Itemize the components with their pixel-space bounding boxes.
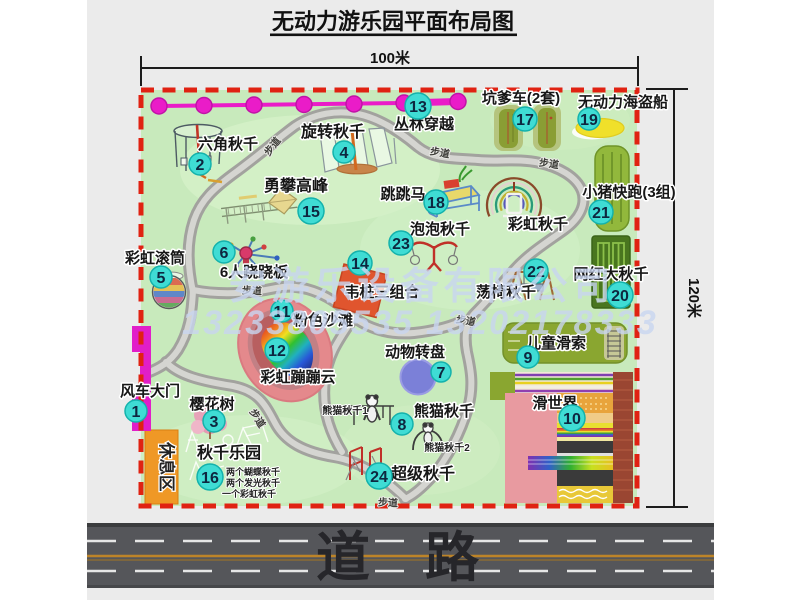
svg-text:彩虹滚筒: 彩虹滚筒 xyxy=(124,249,185,267)
svg-text:彩虹秋千: 彩虹秋千 xyxy=(507,215,568,233)
svg-text:15: 15 xyxy=(302,204,320,221)
svg-text:彩虹蹦蹦云: 彩虹蹦蹦云 xyxy=(259,368,335,386)
svg-text:18: 18 xyxy=(427,195,445,212)
svg-text:无动力游乐园平面布局图: 无动力游乐园平面布局图 xyxy=(272,9,514,34)
svg-text:6: 6 xyxy=(220,245,229,262)
svg-text:12: 12 xyxy=(268,343,286,360)
svg-text:5: 5 xyxy=(157,270,166,287)
svg-text:小猪快跑(3组): 小猪快跑(3组) xyxy=(582,183,675,201)
svg-text:16: 16 xyxy=(201,470,219,487)
svg-text:24: 24 xyxy=(370,469,388,486)
svg-text:19: 19 xyxy=(580,112,598,129)
svg-text:休息区: 休息区 xyxy=(157,441,177,492)
svg-text:3: 3 xyxy=(210,414,219,431)
svg-text:4: 4 xyxy=(340,145,349,162)
svg-text:两个发光秋千: 两个发光秋千 xyxy=(226,477,280,488)
svg-text:超级秋千: 超级秋千 xyxy=(390,464,455,483)
svg-text:9: 9 xyxy=(524,350,533,367)
svg-text:一个彩虹秋千: 一个彩虹秋千 xyxy=(222,488,276,499)
svg-text:六角秋千: 六角秋千 xyxy=(198,135,258,153)
svg-text:1: 1 xyxy=(132,404,141,421)
svg-text:两个蝴蝶秋千: 两个蝴蝶秋千 xyxy=(226,466,280,477)
svg-text:100米: 100米 xyxy=(370,49,411,67)
svg-text:7: 7 xyxy=(437,365,446,382)
svg-text:安游乐设备有限公司: 安游乐设备有限公司 xyxy=(228,266,615,308)
svg-text:道: 道 xyxy=(316,528,370,588)
svg-text:10: 10 xyxy=(563,411,581,428)
svg-text:泡泡秋千: 泡泡秋千 xyxy=(410,220,470,238)
svg-text:坑爹车(2套): 坑爹车(2套) xyxy=(482,89,560,107)
svg-text:动物转盘: 动物转盘 xyxy=(385,343,445,361)
svg-text:熊猫秋千1: 熊猫秋千1 xyxy=(322,404,368,417)
svg-text:120米: 120米 xyxy=(685,278,703,319)
svg-text:2: 2 xyxy=(196,157,205,174)
svg-text:13: 13 xyxy=(409,99,427,116)
svg-text:17: 17 xyxy=(516,112,534,129)
svg-text:熊猫秋千2: 熊猫秋千2 xyxy=(424,441,470,454)
svg-text:21: 21 xyxy=(592,205,610,222)
svg-text:路: 路 xyxy=(425,528,480,588)
svg-text:熊猫秋千: 熊猫秋千 xyxy=(414,402,474,420)
svg-text:旋转秋千: 旋转秋千 xyxy=(300,122,365,141)
svg-text:步道: 步道 xyxy=(378,495,399,509)
svg-text:勇攀高峰: 勇攀高峰 xyxy=(264,176,329,195)
svg-text:23: 23 xyxy=(392,236,410,253)
svg-text:跳跳马: 跳跳马 xyxy=(380,185,425,203)
svg-text:8: 8 xyxy=(398,417,407,434)
svg-text:秋千乐园: 秋千乐园 xyxy=(197,443,261,462)
svg-text:13233805535 13202178333: 13233805535 13202178333 xyxy=(182,304,658,342)
svg-text:风车大门: 风车大门 xyxy=(120,382,180,400)
